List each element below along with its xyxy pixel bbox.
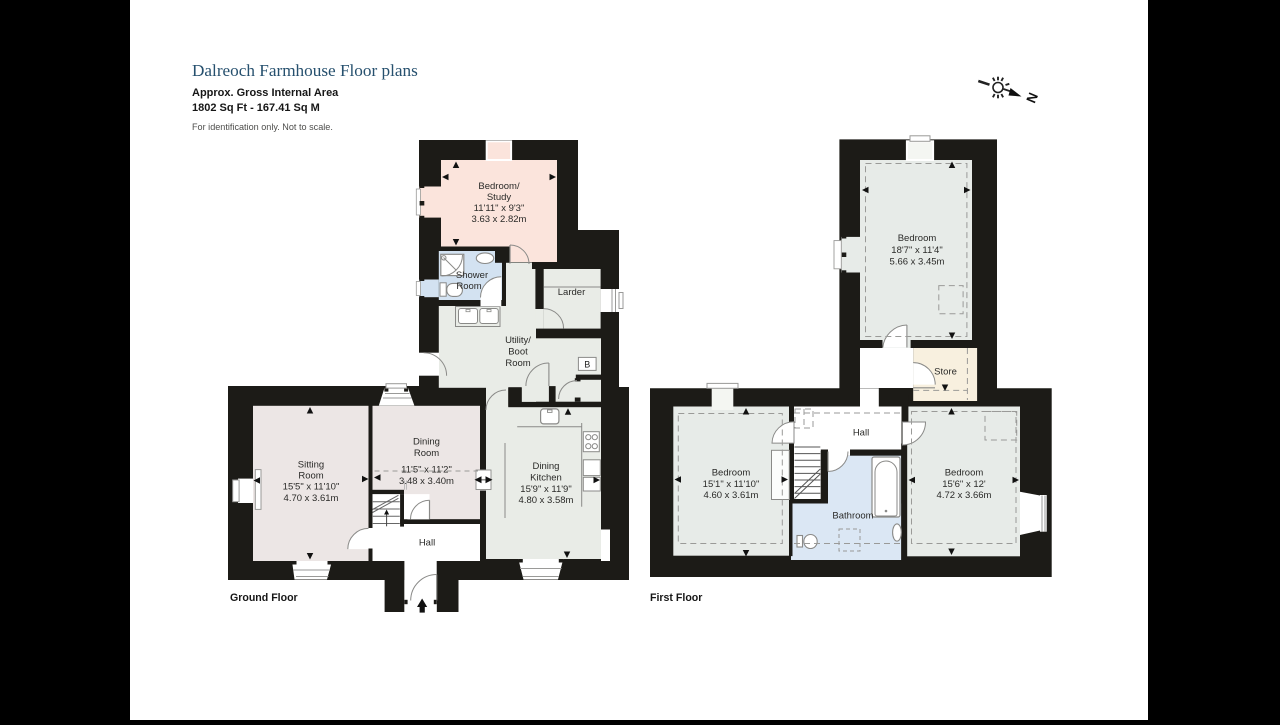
- svg-text:1802 Sq Ft - 167.41 Sq M: 1802 Sq Ft - 167.41 Sq M: [192, 102, 320, 114]
- svg-text:15'5" x 11'10": 15'5" x 11'10": [283, 482, 340, 493]
- svg-text:Room: Room: [298, 471, 323, 482]
- svg-text:Dining: Dining: [413, 437, 440, 448]
- svg-text:11'5" x 11'2": 11'5" x 11'2": [401, 465, 452, 476]
- svg-text:Room: Room: [505, 358, 530, 369]
- svg-text:15'9" x 11'9": 15'9" x 11'9": [520, 484, 571, 495]
- svg-text:Bedroom: Bedroom: [945, 468, 984, 479]
- svg-text:Bedroom: Bedroom: [712, 468, 751, 479]
- svg-text:Ground Floor: Ground Floor: [230, 592, 298, 604]
- svg-text:Hall: Hall: [419, 538, 435, 549]
- svg-text:First Floor: First Floor: [650, 592, 702, 604]
- svg-text:4.72 x 3.66m: 4.72 x 3.66m: [937, 490, 992, 501]
- svg-text:Bathroom: Bathroom: [832, 511, 873, 522]
- svg-text:3.48 x 3.40m: 3.48 x 3.40m: [399, 476, 454, 487]
- svg-text:Store: Store: [934, 367, 957, 378]
- svg-text:5.66 x 3.45m: 5.66 x 3.45m: [890, 257, 945, 268]
- svg-text:11'11" x 9'3": 11'11" x 9'3": [474, 203, 525, 214]
- svg-text:B: B: [584, 359, 590, 369]
- svg-text:3.63 x 2.82m: 3.63 x 2.82m: [472, 214, 527, 225]
- svg-text:Study: Study: [487, 192, 512, 203]
- svg-text:15'1" x 11'10": 15'1" x 11'10": [703, 479, 760, 490]
- svg-text:15'6" x 12': 15'6" x 12': [942, 479, 986, 490]
- svg-text:Hall: Hall: [853, 428, 869, 439]
- svg-text:Approx. Gross Internal Area: Approx. Gross Internal Area: [192, 87, 339, 99]
- svg-text:18'7" x 11'4": 18'7" x 11'4": [891, 245, 942, 256]
- svg-text:Dining: Dining: [533, 461, 560, 472]
- svg-text:Sitting: Sitting: [298, 460, 324, 471]
- svg-text:Boot: Boot: [508, 347, 528, 358]
- svg-text:For identification only. Not t: For identification only. Not to scale.: [192, 122, 333, 132]
- svg-text:Shower: Shower: [456, 270, 488, 281]
- svg-text:Bedroom: Bedroom: [898, 233, 937, 244]
- svg-text:Room: Room: [414, 448, 439, 459]
- svg-text:Room: Room: [456, 281, 481, 292]
- svg-text:Larder: Larder: [558, 287, 585, 298]
- svg-text:4.80 x 3.58m: 4.80 x 3.58m: [519, 495, 574, 506]
- svg-text:Dalreoch Farmhouse Floor plans: Dalreoch Farmhouse Floor plans: [192, 61, 418, 80]
- svg-text:Kitchen: Kitchen: [530, 473, 562, 484]
- svg-text:4.70 x 3.61m: 4.70 x 3.61m: [284, 493, 339, 504]
- svg-text:Utility/: Utility/: [505, 335, 531, 346]
- svg-text:Bedroom/: Bedroom/: [478, 181, 520, 192]
- svg-text:4.60 x 3.61m: 4.60 x 3.61m: [704, 490, 759, 501]
